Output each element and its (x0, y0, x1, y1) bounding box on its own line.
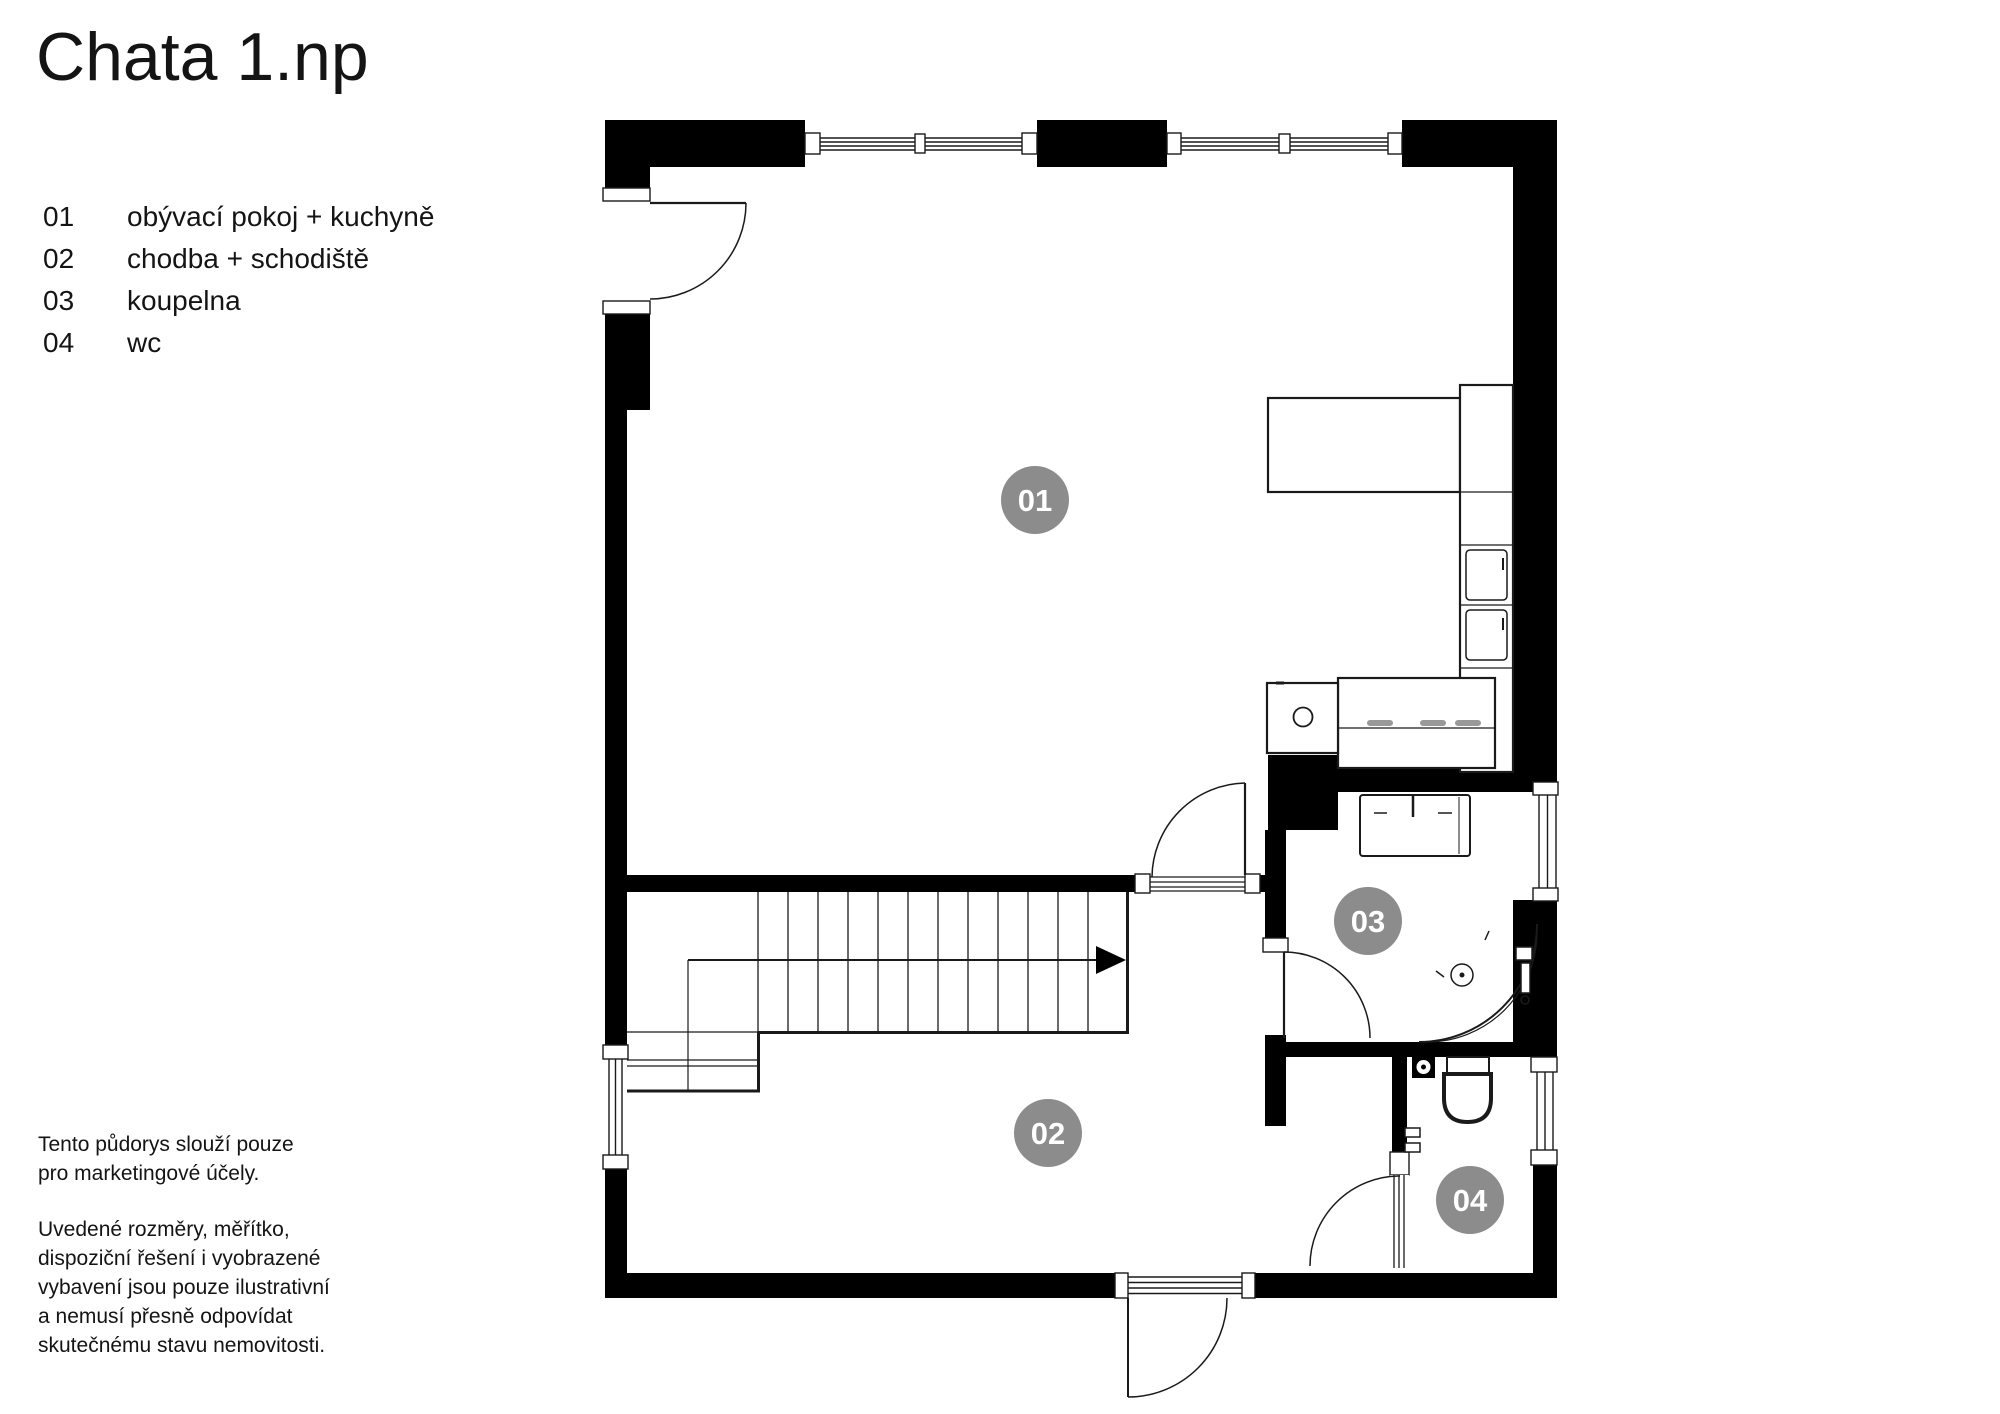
kitchen-hob-burners (1367, 720, 1481, 726)
windows (603, 133, 1558, 1169)
floor-plan-drawing: 01 02 03 04 (0, 0, 2000, 1414)
window-wc (1531, 1057, 1557, 1165)
wall-top-right-block (1402, 120, 1557, 167)
room-badge-01: 01 (1001, 466, 1069, 534)
staircase (627, 892, 1129, 1092)
bathroom-door (1263, 938, 1370, 1038)
stair-treads (758, 892, 1088, 1032)
wall-hall-bath-upper (1265, 830, 1286, 940)
wall-right-middle (1513, 900, 1557, 1057)
room-badge-02: 02 (1014, 1099, 1082, 1167)
kitchen-appliance-oven (1466, 550, 1507, 600)
toilet-paper-holder (1405, 1128, 1420, 1152)
wall-bath-bottom (1265, 1042, 1557, 1057)
floorplan-page: Chata 1.np 01obývací pokoj + kuchyně 02c… (0, 0, 2000, 1414)
window-bathroom (1533, 782, 1558, 901)
room-badge-number: 03 (1351, 904, 1385, 939)
room-badge-number: 04 (1453, 1183, 1488, 1218)
stair-direction-arrow (688, 946, 1126, 974)
wall-left-middle (605, 410, 627, 1058)
terrace-door (1115, 1273, 1255, 1397)
wall-left-below-door (605, 314, 650, 410)
room-badge-number: 01 (1018, 483, 1052, 518)
kitchen-sink-unit (1267, 683, 1338, 753)
wc-fixtures (1405, 1056, 1491, 1152)
washer-valve-icon (1412, 1056, 1435, 1078)
toilet (1444, 1057, 1491, 1122)
wc-door (1310, 1152, 1409, 1268)
room-badge-04: 04 (1436, 1166, 1504, 1234)
wall-bottom-left (605, 1273, 1115, 1298)
room-badge-03: 03 (1334, 887, 1402, 955)
kitchen-unit (1267, 385, 1513, 772)
wall-corner-block (1268, 755, 1338, 830)
wall-top-mid-block (1037, 120, 1167, 167)
entrance-door (603, 188, 746, 314)
wall-top-left-column (605, 167, 650, 190)
bathroom-vanity (1360, 795, 1470, 856)
window-top-1 (805, 133, 1037, 154)
wall-bottom-right (1254, 1273, 1557, 1298)
room-badge-number: 02 (1031, 1116, 1065, 1151)
wall-right-upper (1513, 167, 1557, 783)
kitchen-counter-top (1268, 398, 1460, 492)
livingroom-door (1135, 783, 1260, 893)
window-top-2 (1167, 133, 1402, 154)
wall-hallway-top (605, 875, 1135, 892)
window-left (603, 1045, 628, 1169)
kitchen-appliance-fridge (1466, 610, 1507, 660)
shower-mixer (1516, 947, 1532, 960)
wall-top-left-block (605, 120, 805, 167)
